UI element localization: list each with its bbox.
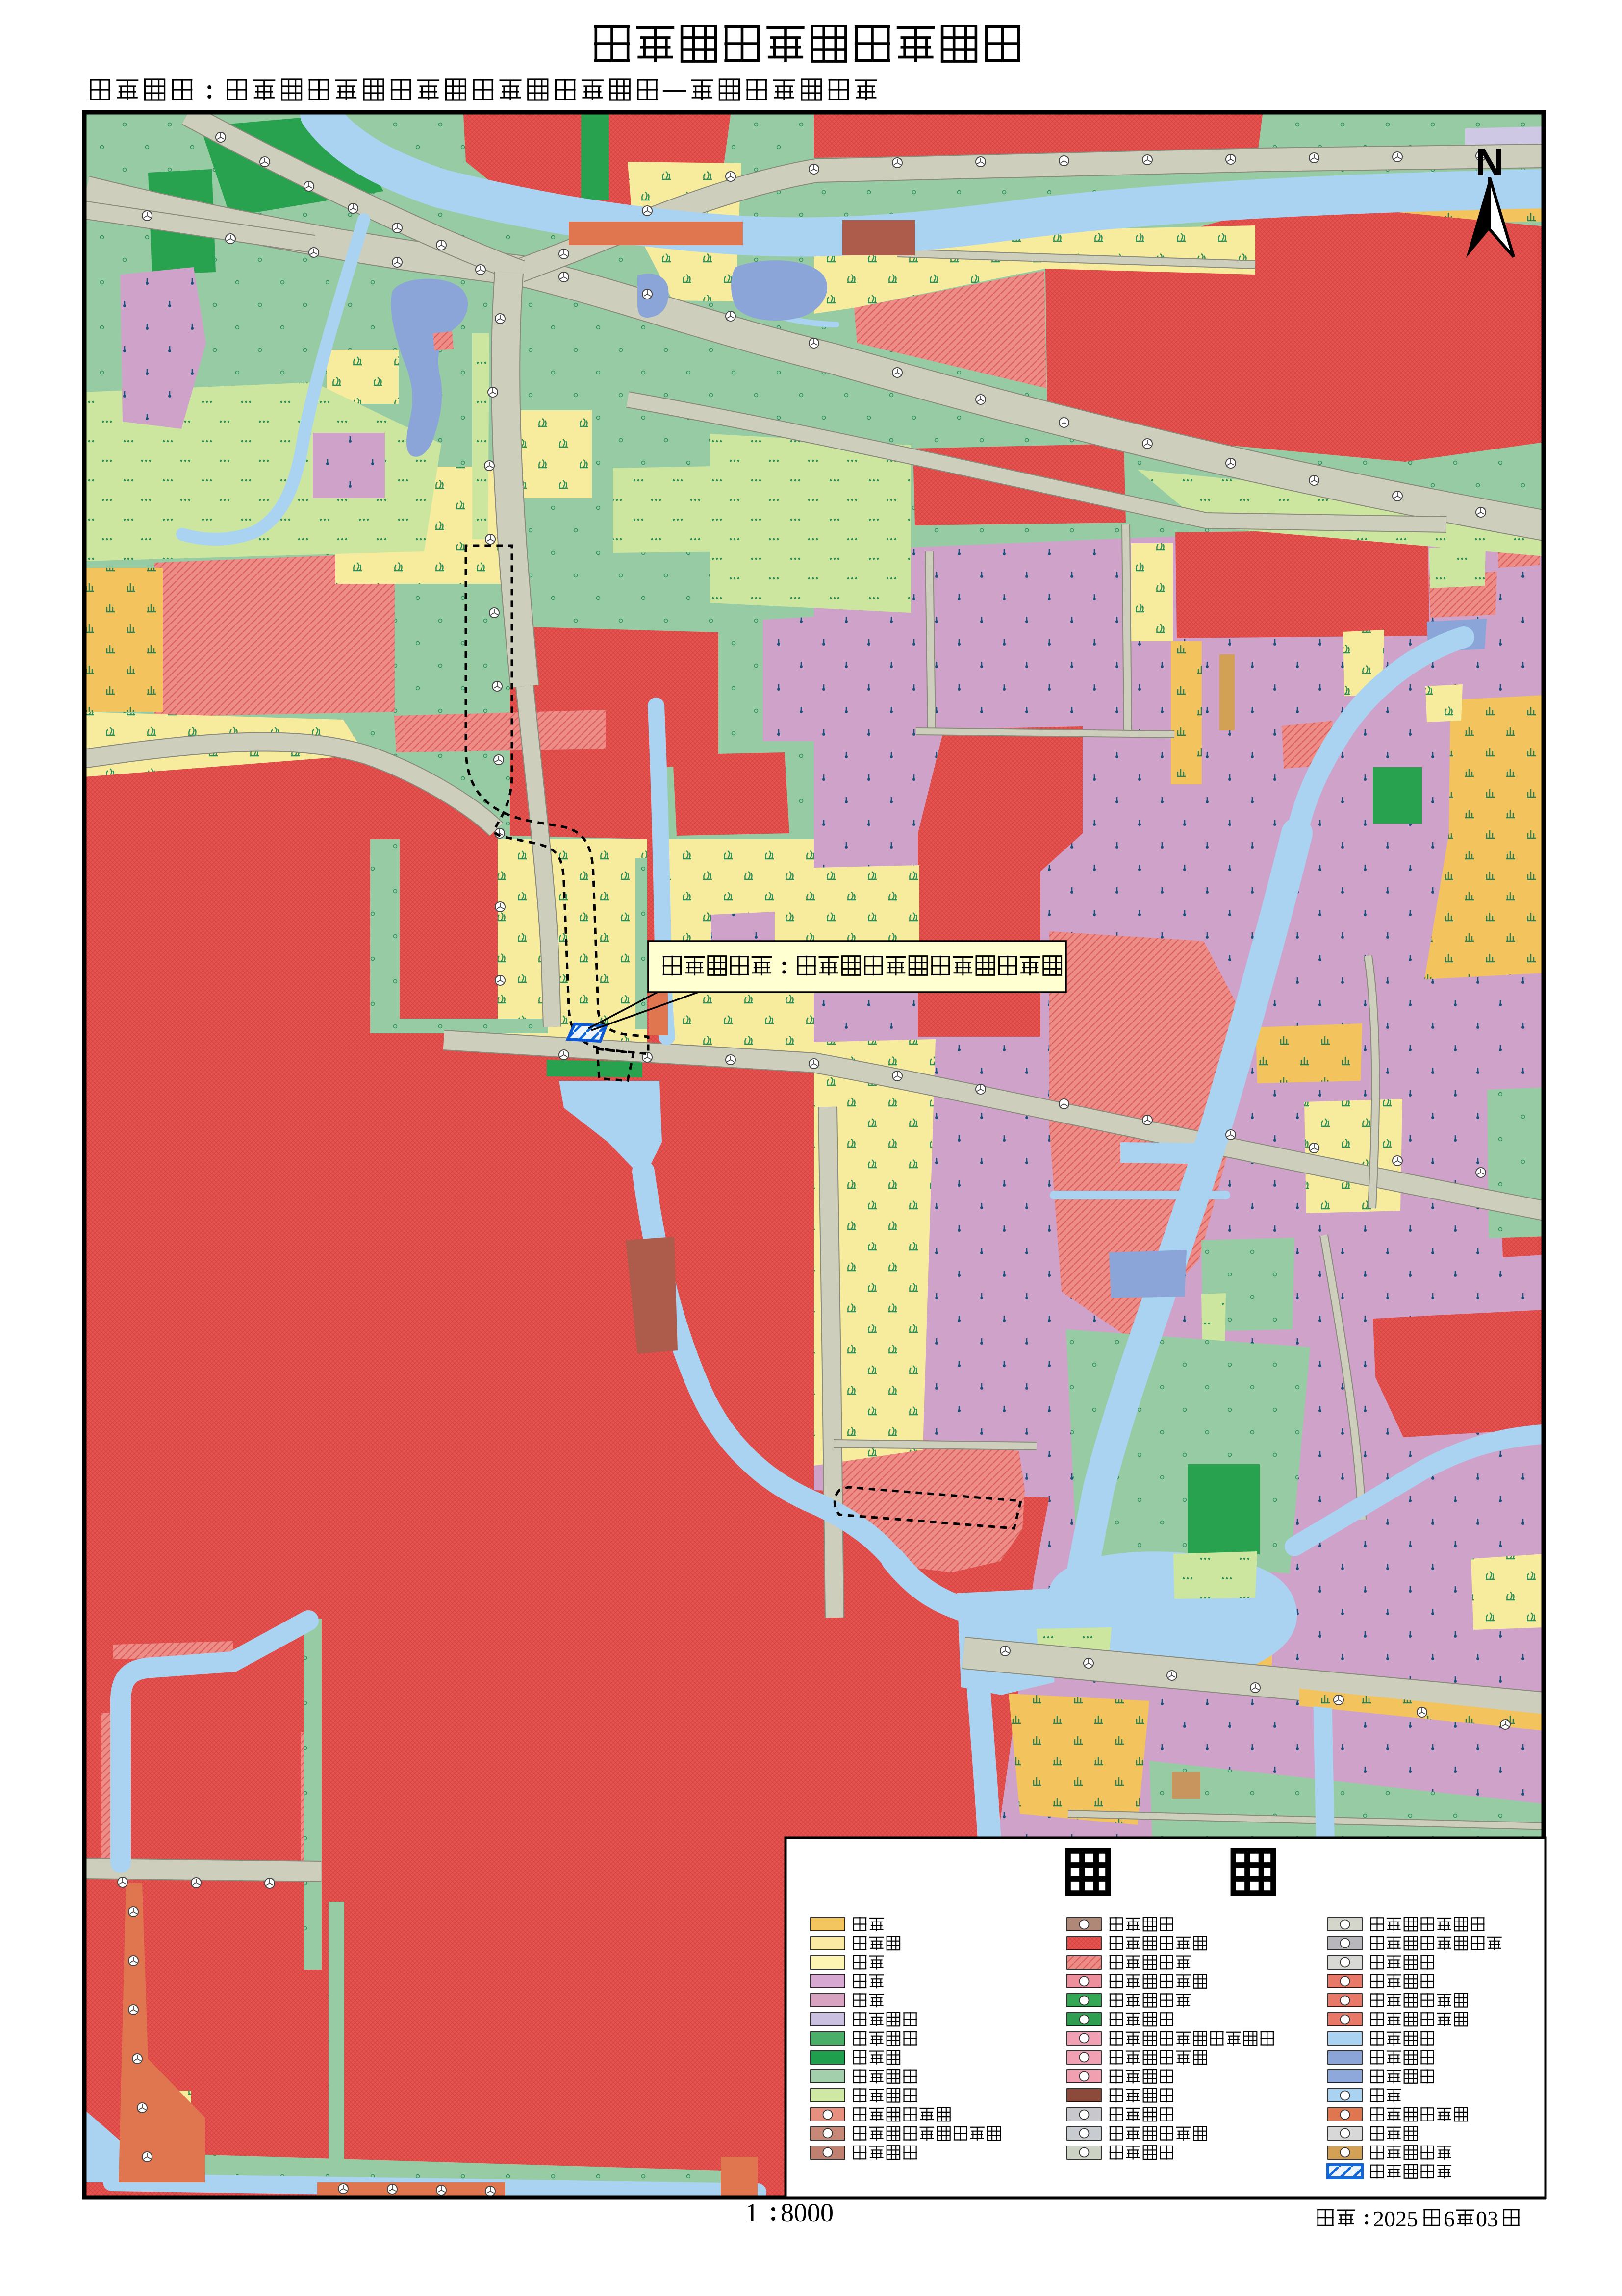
svg-text:2025: 2025	[1373, 2206, 1418, 2231]
svg-text:6: 6	[1444, 2206, 1455, 2231]
svg-text:1: 1	[745, 2198, 759, 2227]
svg-text:8000: 8000	[781, 2198, 834, 2227]
svg-text:03: 03	[1476, 2206, 1498, 2231]
